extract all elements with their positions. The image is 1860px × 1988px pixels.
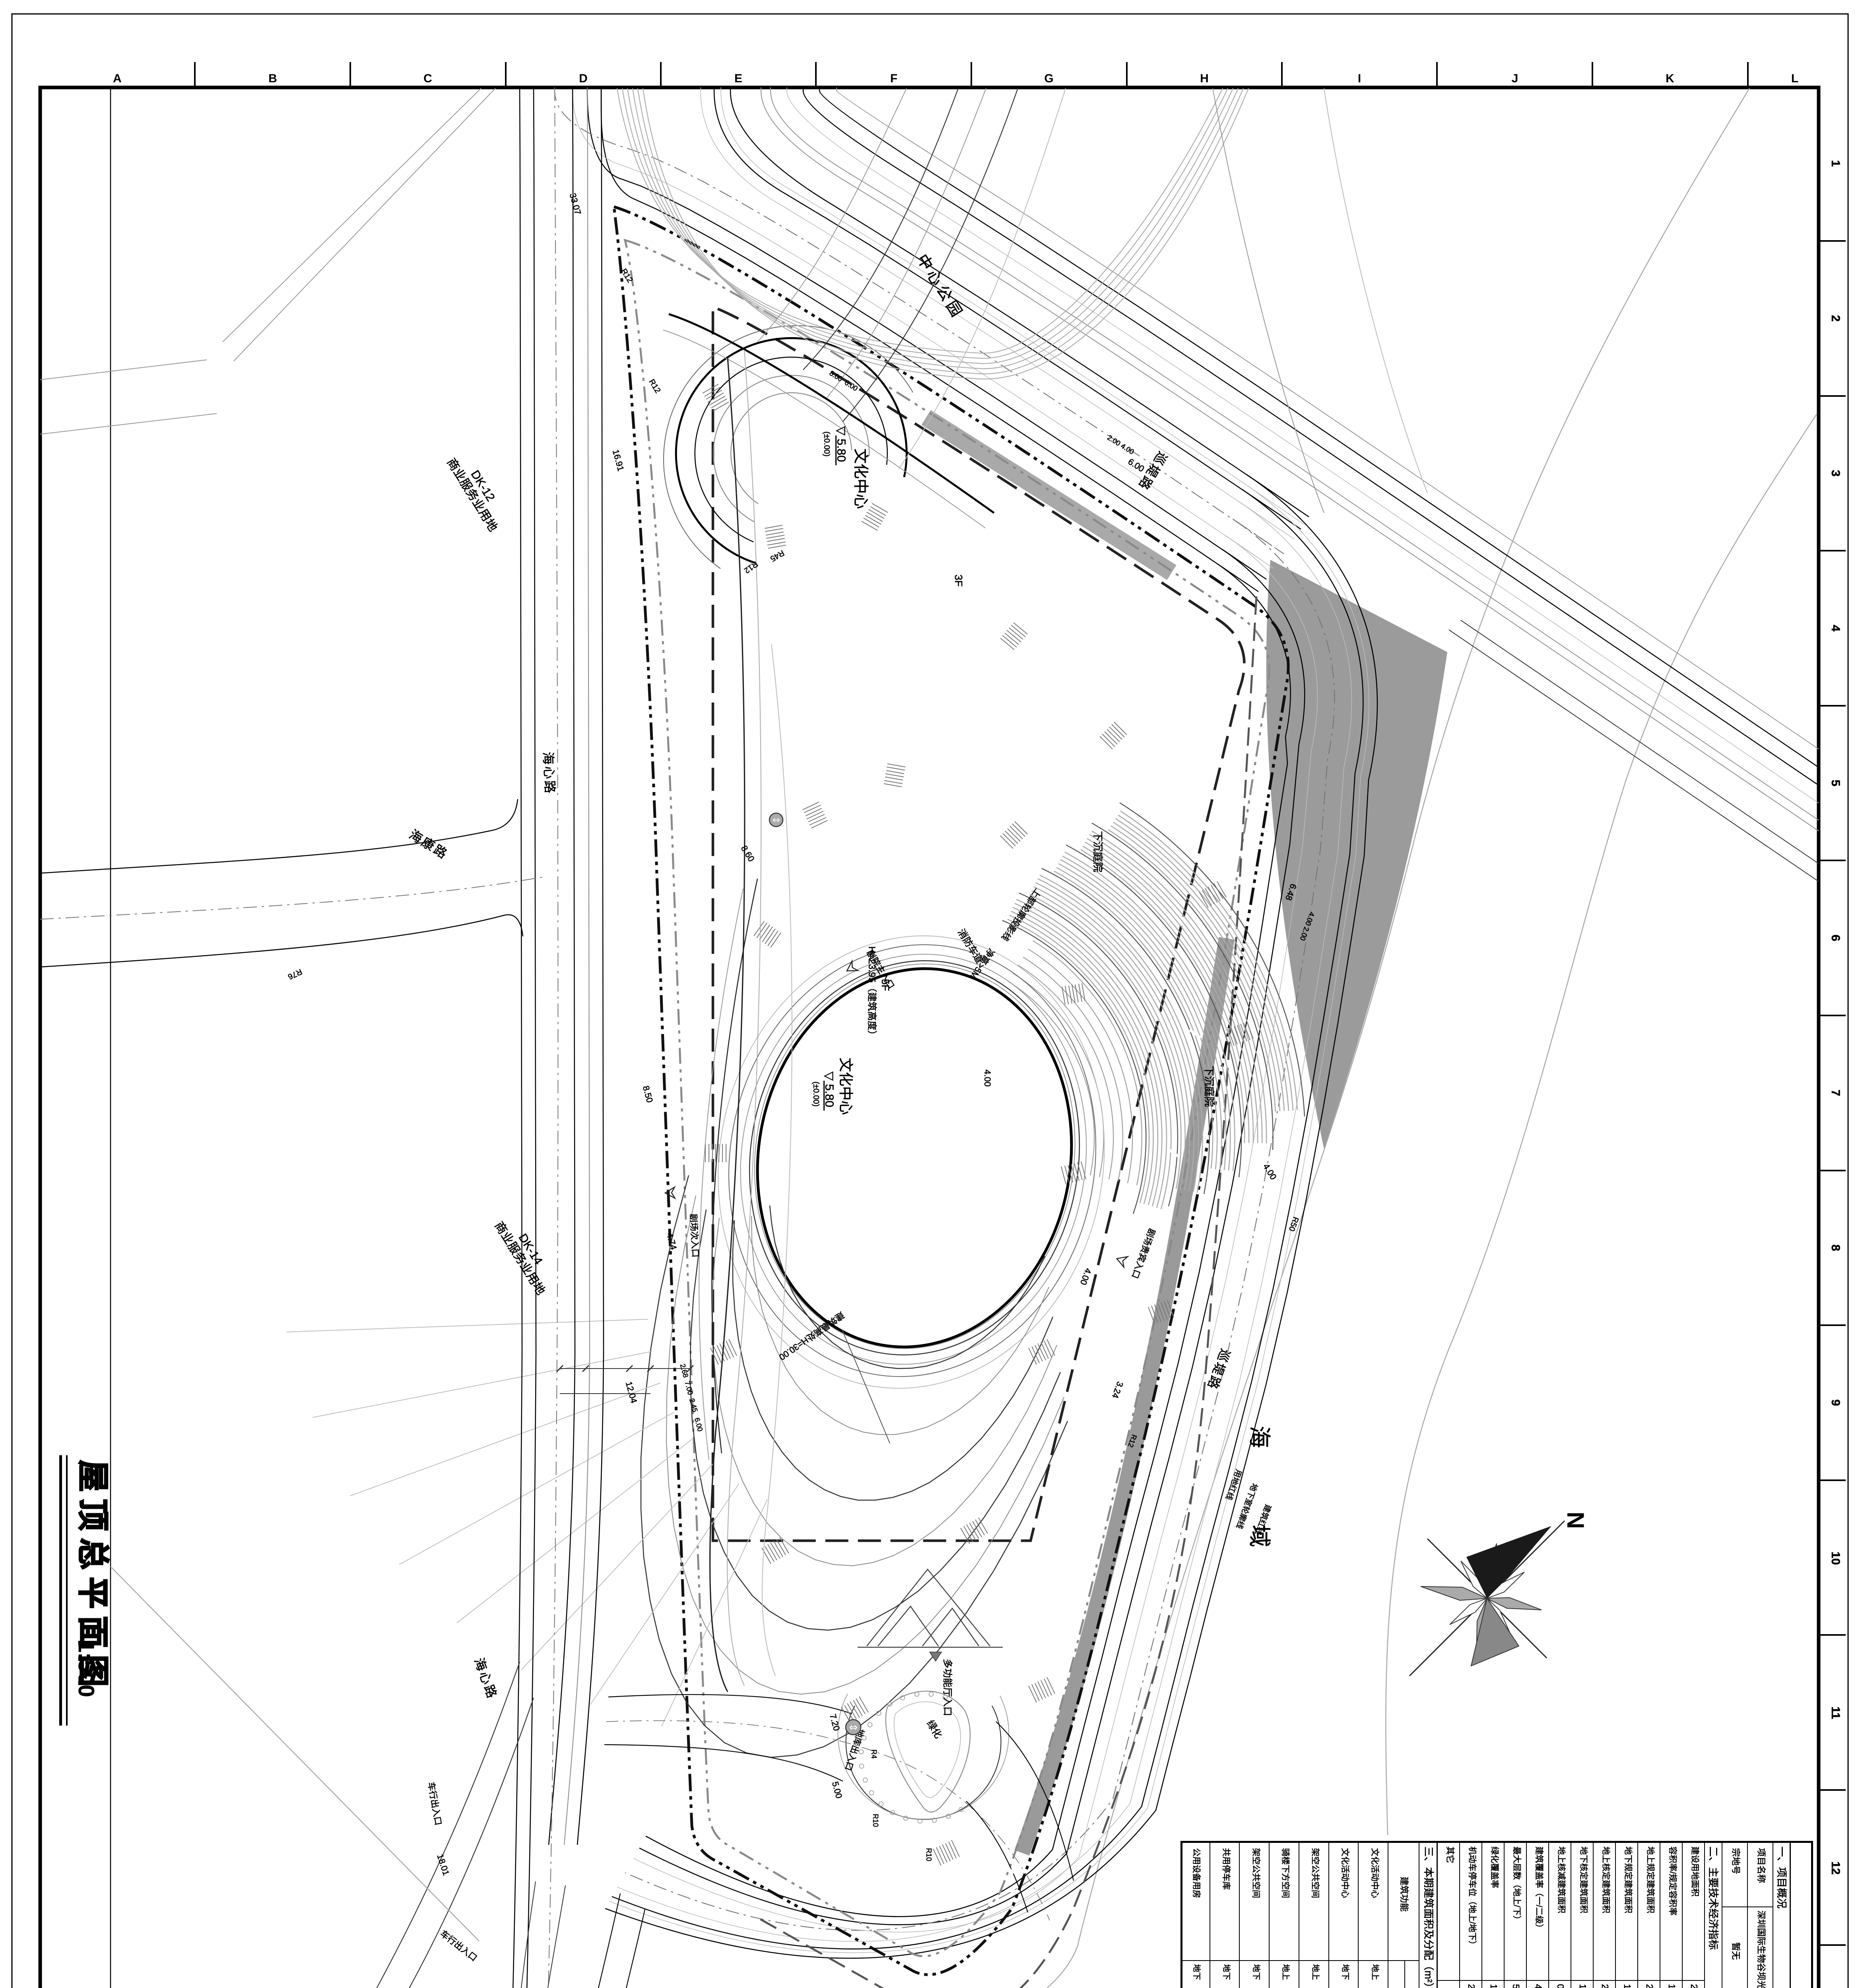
svg-text:⇕: ⇕ xyxy=(847,1723,859,1732)
svg-text:⇕: ⇕ xyxy=(771,816,781,824)
